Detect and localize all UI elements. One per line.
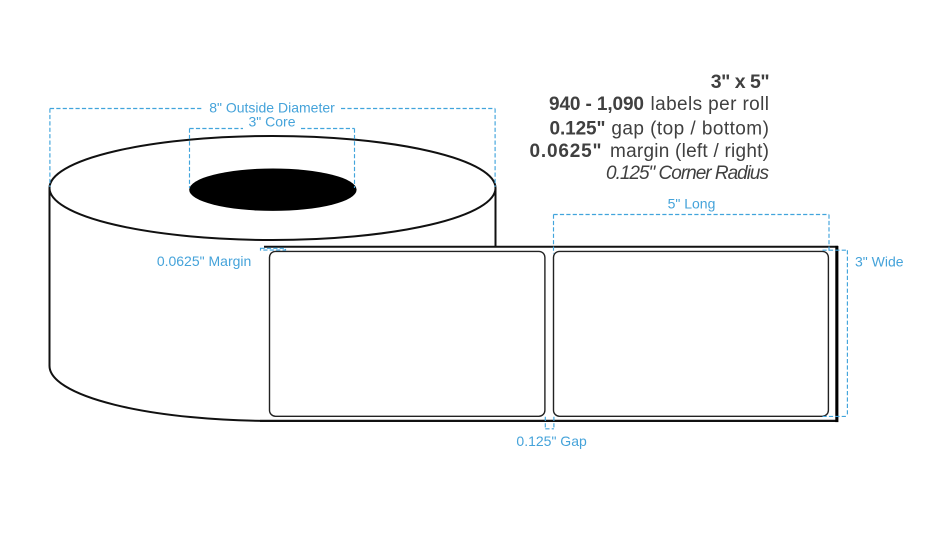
svg-text:0.0625" Margin: 0.0625" Margin [157, 253, 251, 269]
svg-text:0.125" Corner Radius: 0.125" Corner Radius [606, 163, 770, 184]
svg-text:0.125"gap (top / bottom): 0.125"gap (top / bottom) [550, 119, 769, 140]
svg-text:3" Wide: 3" Wide [855, 254, 904, 270]
svg-text:3" Core: 3" Core [249, 114, 296, 130]
svg-text:3" x 5": 3" x 5" [711, 71, 770, 93]
svg-text:0.0625"margin (left / right): 0.0625"margin (left / right) [530, 141, 770, 162]
svg-text:5" Long: 5" Long [668, 196, 716, 212]
svg-text:940 - 1,090labels per roll: 940 - 1,090labels per roll [549, 94, 769, 115]
svg-text:0.125" Gap: 0.125" Gap [516, 433, 587, 449]
